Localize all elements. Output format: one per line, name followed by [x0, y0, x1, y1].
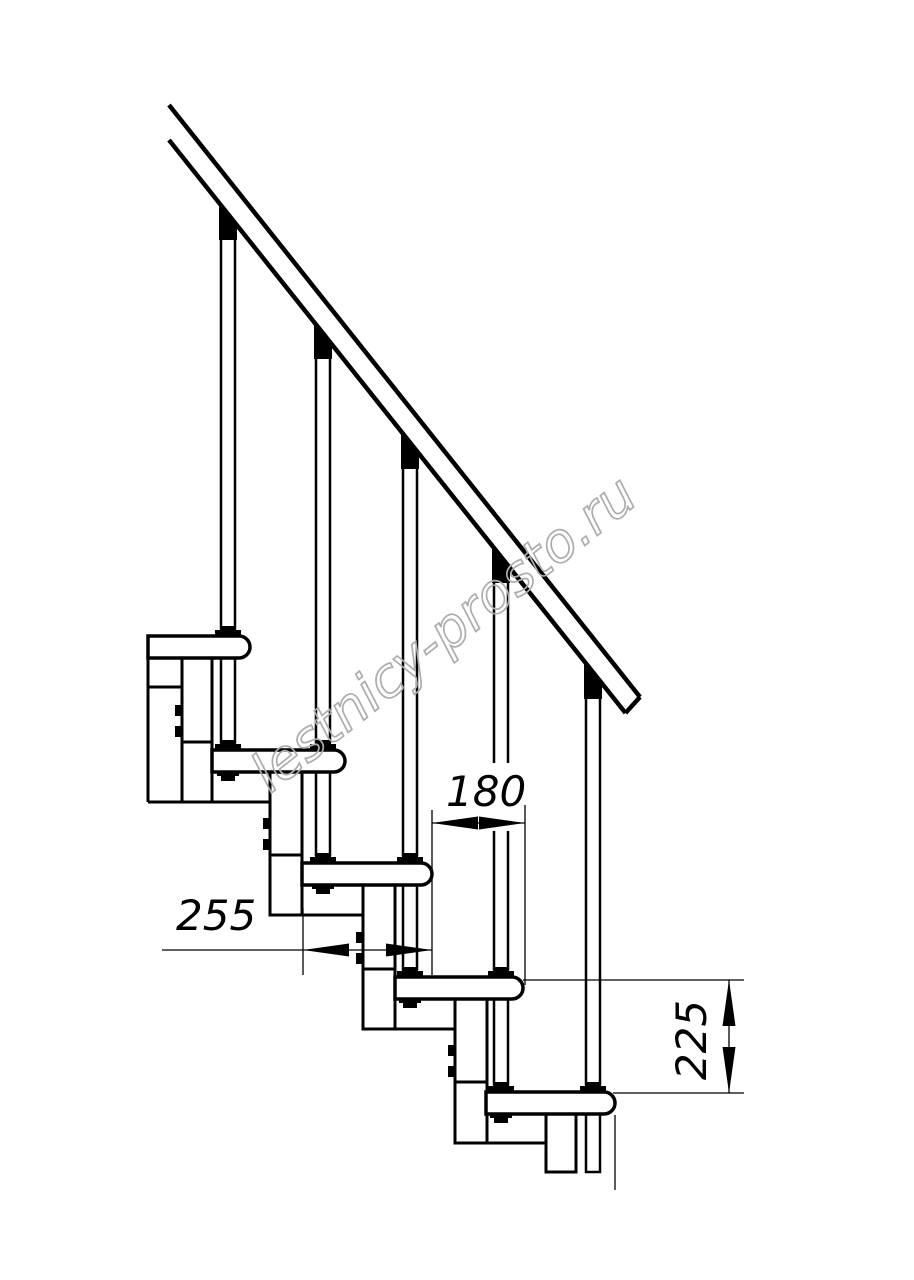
baluster-rod-lower-3: [403, 885, 417, 969]
stringer-column-5: [546, 1114, 576, 1172]
rod-nut: [221, 776, 235, 781]
baluster-1: [221, 238, 235, 628]
handrail-lower-edge: [169, 140, 626, 713]
column-bolt: [263, 839, 271, 850]
stringer-column-4: [455, 999, 487, 1143]
column-bolt: [175, 726, 183, 737]
column-bolt: [175, 705, 183, 716]
rod-foot: [488, 1086, 514, 1092]
rod-nut: [403, 1003, 417, 1008]
tread-1: [148, 636, 250, 658]
rod-nut: [316, 889, 330, 894]
rod-nut: [399, 999, 421, 1003]
column-bolt: [448, 1066, 456, 1077]
dimension-rise-label: 225: [667, 1000, 716, 1080]
stringer-column-3: [363, 885, 395, 1029]
rod-nut: [312, 885, 334, 889]
column-bolt: [263, 818, 271, 829]
column-bolt: [448, 1045, 456, 1056]
tread-5: [486, 1092, 615, 1114]
tread-3: [302, 863, 432, 885]
rod-foot: [397, 971, 423, 977]
rod-foot: [215, 744, 241, 750]
stringer-column-1: [182, 657, 212, 802]
dimension-arrowhead: [303, 944, 349, 957]
baluster-foot: [215, 630, 241, 636]
staircase-technical-drawing: lestnicy-prosto.ru 255 180 225: [0, 0, 914, 1280]
baluster-foot: [397, 857, 423, 863]
column-bolt: [356, 953, 364, 964]
rod-nut: [494, 1118, 508, 1123]
rod-nut: [217, 772, 239, 776]
baluster-foot: [580, 1086, 606, 1092]
tread-4: [395, 977, 523, 999]
drawing-page: lestnicy-prosto.ru 255 180 225: [0, 0, 914, 1280]
baluster-foot: [488, 971, 514, 977]
dimension-arrowhead: [723, 1047, 736, 1093]
dimension-arrowhead: [723, 980, 736, 1026]
dimension-going-label: 255: [176, 891, 256, 940]
baluster-rod-lower-2: [316, 772, 330, 855]
baluster-rod-lower-4: [494, 999, 508, 1084]
baluster-5: [586, 697, 600, 1084]
baluster-rod-lower-5: [586, 1114, 600, 1172]
dimension-offset-label: 180: [446, 767, 526, 816]
baluster-rod-lower-1: [221, 658, 235, 742]
rod-foot: [310, 857, 336, 863]
rod-nut: [490, 1114, 512, 1118]
column-bolt: [356, 932, 364, 943]
